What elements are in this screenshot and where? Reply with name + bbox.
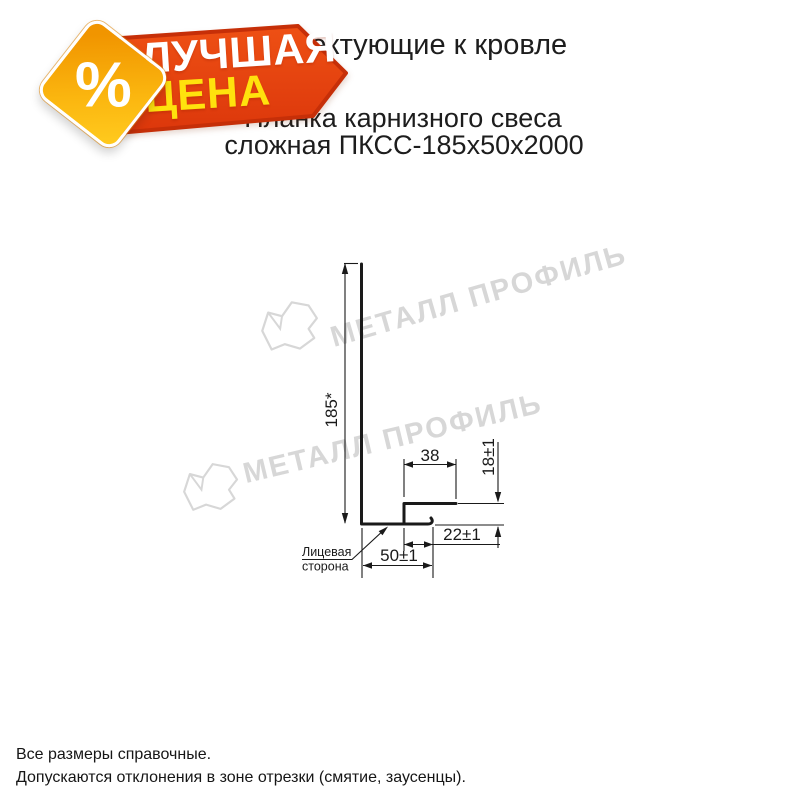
dim-label-50: 50±1 [380,546,418,565]
arrow-50-left [363,562,372,568]
arrow-50-right [423,562,432,568]
footnote-line: Допускаются отклонения в зоне отрезки (с… [16,767,466,790]
dim-label-185: 185* [322,392,341,427]
percent-icon: % [75,52,132,116]
profile-hook [404,504,456,525]
footnote-line: Все размеры справочные. [16,744,466,767]
arrow-22-right [424,541,433,547]
face-side-label-line2: сторона [302,560,349,574]
product-image-page: МЕТАЛЛ ПРОФИЛЬ МЕТАЛЛ ПРОФИЛЬ Комплектую… [0,0,800,800]
arrow-185-up [342,263,348,274]
arrow-185-down [342,513,348,524]
arrow-18-down [495,492,501,503]
arrow-38-left [404,461,413,467]
dim-label-22: 22±1 [443,525,481,544]
dim-label-18: 18±1 [479,438,498,476]
face-side-label-line1: Лицевая [302,545,351,559]
dim-label-38: 38 [421,446,440,465]
arrow-18-up [495,526,501,537]
footnotes: Все размеры справочные. Допускаются откл… [16,744,466,789]
dim-18-ext [435,504,504,526]
arrow-38-right [447,461,456,467]
profile-web-and-bottom [362,264,433,524]
